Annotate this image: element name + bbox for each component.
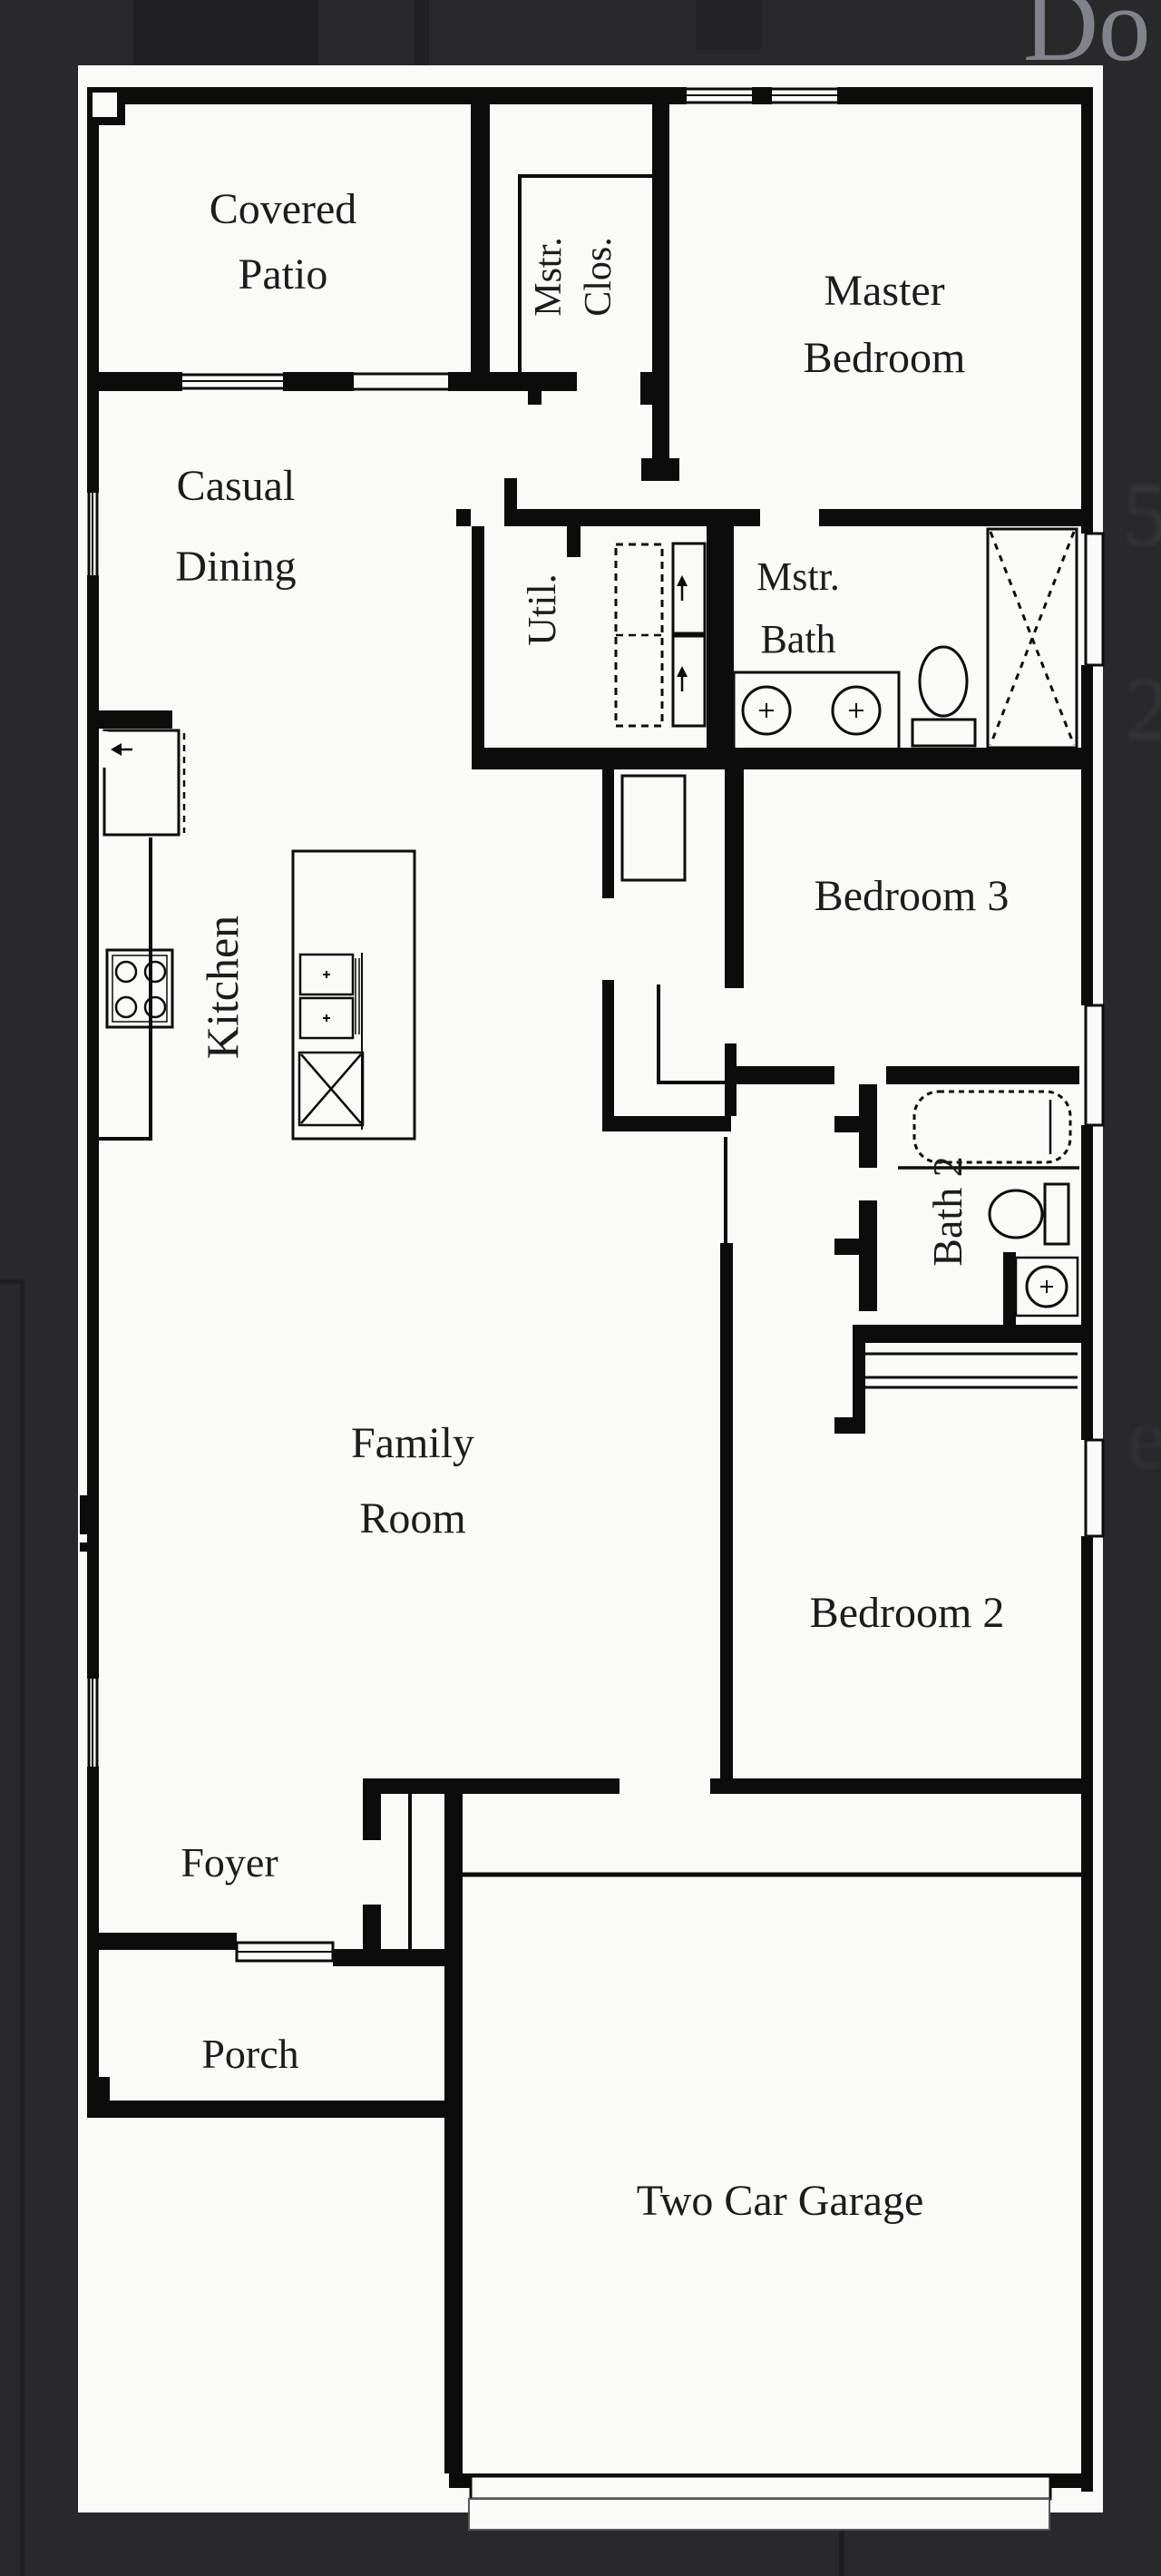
cutoff-glyph-2: 2 <box>1125 659 1161 759</box>
window-family-room <box>87 1679 99 1767</box>
room-label-master-bedroom: Master <box>824 267 944 315</box>
window-master-bath <box>1081 534 1103 665</box>
room-label-garage: Two Car Garage <box>637 2177 924 2225</box>
pantry-door-opening <box>102 731 108 768</box>
bg-shadow-rect <box>696 0 762 50</box>
room-label-covered-patio: Covered <box>210 185 357 233</box>
garage-apron <box>469 2499 1049 2530</box>
plan-paper <box>78 65 1103 2512</box>
cutoff-glyph-5: 5 <box>1123 464 1161 564</box>
bg-faint-line <box>839 2530 844 2576</box>
room-label-covered-patio: Patio <box>239 250 328 299</box>
room-label-bedroom-3: Bedroom 3 <box>815 872 1010 920</box>
room-label-kitchen: Kitchen <box>197 916 248 1059</box>
room-label-porch: Porch <box>201 2031 298 2077</box>
room-label-casual-dining: Casual <box>177 462 296 510</box>
bg-faint-line <box>20 1281 24 2576</box>
window-casual-dining <box>87 493 99 575</box>
entry-door <box>237 1943 333 1961</box>
window-bedroom-3 <box>1081 1005 1103 1125</box>
garage-door <box>469 2476 1050 2530</box>
window-bedroom-2 <box>1081 1440 1103 1536</box>
room-label-master-bedroom: Bedroom <box>804 334 966 382</box>
corner-post-notch <box>93 93 117 117</box>
room-label-bath-2: Bath 2 <box>924 1156 971 1266</box>
room-label-master-bath: Bath <box>760 617 835 661</box>
room-label-foyer: Foyer <box>180 1839 278 1885</box>
room-label-family-room: Room <box>359 1494 465 1543</box>
room-label-bedroom-2: Bedroom 2 <box>810 1589 1005 1637</box>
room-label-master-closet: Mstr. <box>528 237 570 317</box>
room-label-casual-dining: Dining <box>175 543 296 591</box>
room-label-utility: Util. <box>520 573 564 645</box>
room-label-master-bath: Mstr. <box>756 554 840 599</box>
cutoff-glyph-e: e <box>1127 1387 1161 1488</box>
window-master-bedroom-2 <box>772 87 837 104</box>
floor-plan-svg: Do 5 2 e <box>0 0 1161 2576</box>
window-master-bedroom-1 <box>687 87 752 104</box>
corner-post-detail <box>87 87 125 125</box>
room-label-family-room: Family <box>351 1419 474 1467</box>
room-label-master-closet: Clos. <box>578 237 620 317</box>
